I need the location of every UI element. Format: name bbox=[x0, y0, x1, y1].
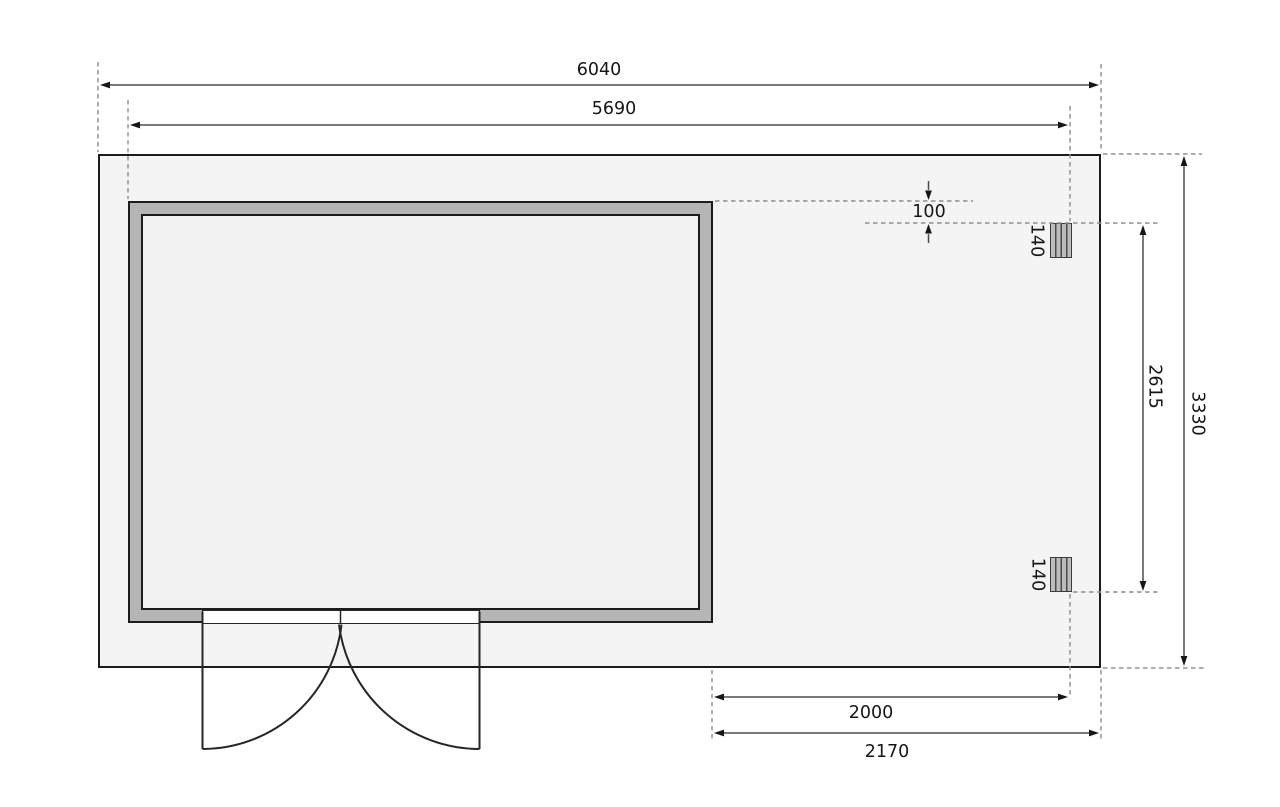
canopy-post-bottom bbox=[1050, 557, 1072, 592]
door-threshold bbox=[202, 610, 480, 624]
arrow-post-span-bottom bbox=[1140, 581, 1147, 591]
dim-label-post-section-bottom: 140 bbox=[1028, 545, 1047, 605]
dim-label-post-offset: 100 bbox=[899, 203, 959, 222]
floor-plan-canvas: 6040 5690 3330 2615 100 140 140 2000 217… bbox=[0, 0, 1280, 807]
arrow-total-width-left bbox=[100, 82, 110, 89]
arrow-total-depth-bottom bbox=[1181, 656, 1188, 666]
arrow-terrace-clear-right bbox=[1058, 694, 1068, 701]
arrow-terrace-total-right bbox=[1089, 730, 1099, 737]
cabin-interior bbox=[141, 214, 700, 610]
dim-label-cabin-width: 5690 bbox=[574, 100, 654, 119]
dim-label-total-depth: 3330 bbox=[1188, 374, 1207, 454]
arrow-cabin-width-right bbox=[1058, 122, 1068, 129]
arrow-total-depth-top bbox=[1181, 156, 1188, 166]
dim-label-post-span: 2615 bbox=[1145, 349, 1164, 425]
arrow-terrace-total-left bbox=[714, 730, 724, 737]
arrow-total-width-right bbox=[1089, 82, 1099, 89]
dim-label-terrace-clear: 2000 bbox=[831, 704, 911, 723]
dim-label-terrace-total: 2170 bbox=[847, 743, 927, 762]
dim-label-post-section-top: 140 bbox=[1027, 211, 1046, 271]
arrow-post-span-top bbox=[1140, 225, 1147, 235]
cabin-outer-wall bbox=[128, 201, 713, 623]
dim-label-total-width: 6040 bbox=[559, 61, 639, 80]
canopy-post-top bbox=[1050, 223, 1072, 258]
arrow-terrace-clear-left bbox=[714, 694, 724, 701]
arrow-cabin-width-left bbox=[130, 122, 140, 129]
